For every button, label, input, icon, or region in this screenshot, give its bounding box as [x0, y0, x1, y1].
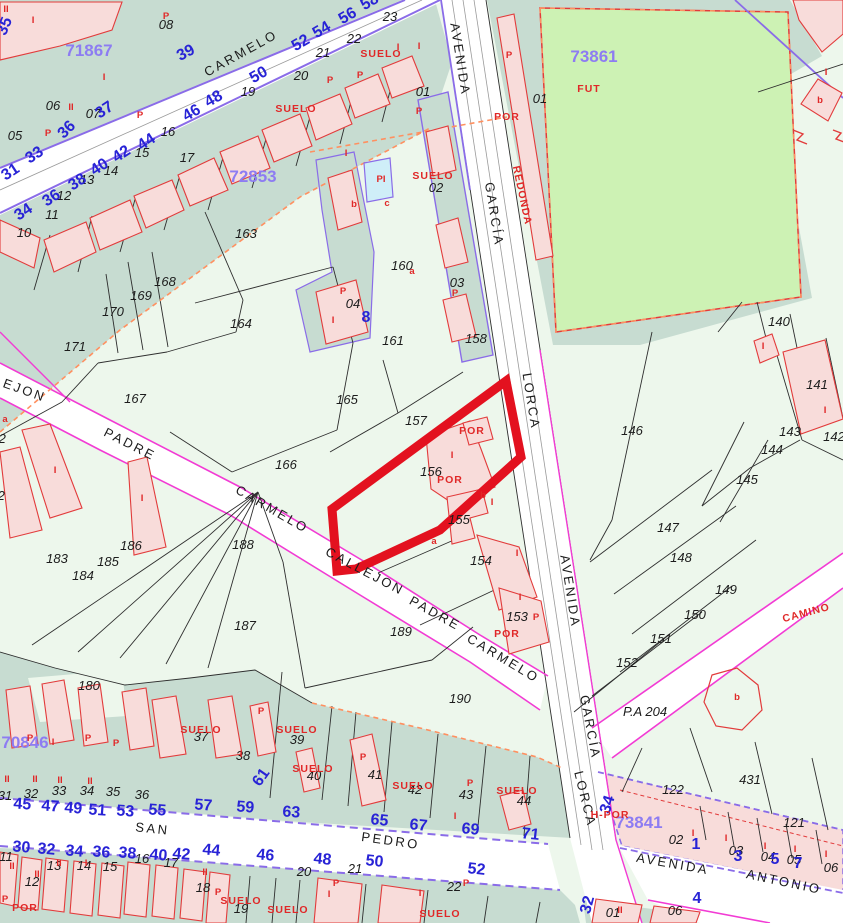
- house-number: 63: [282, 803, 301, 821]
- red-annotation: P: [45, 128, 52, 139]
- block-id: 71867: [65, 41, 112, 60]
- parcel-number: 140: [768, 314, 790, 329]
- red-annotation: I: [764, 841, 767, 852]
- parcel-number: 158: [465, 331, 487, 346]
- red-annotation: II: [202, 867, 207, 878]
- house-number: 52: [467, 860, 487, 879]
- parcel-number: 185: [97, 554, 119, 569]
- red-annotation: I: [418, 41, 421, 52]
- house-number: 47: [41, 797, 60, 815]
- parcel-number: 146: [621, 423, 643, 438]
- parcel-number: 184: [72, 568, 94, 583]
- red-annotation: P: [463, 878, 470, 889]
- red-annotation: P: [452, 288, 459, 299]
- red-annotation: P: [357, 70, 364, 81]
- parcel-number: 144: [761, 442, 783, 457]
- red-annotation: I: [103, 72, 106, 83]
- red-annotation: I: [491, 497, 494, 508]
- red-annotation: POR: [494, 111, 520, 123]
- parcel-number: 431: [739, 772, 761, 787]
- parcel-number: 17: [180, 150, 195, 165]
- parcel-number: 165: [336, 392, 358, 407]
- red-annotation: SUELO: [419, 908, 460, 920]
- house-number: 40: [149, 846, 168, 864]
- parcel-number: 167: [124, 391, 146, 406]
- parcel-number: 122: [662, 782, 684, 797]
- parcel-number: 18: [196, 880, 211, 895]
- red-annotation: SUELO: [412, 170, 453, 182]
- house-number: 67: [409, 816, 429, 835]
- parcel-number: 22: [446, 879, 462, 894]
- parcel-number: 148: [670, 550, 692, 565]
- red-annotation: SUELO: [496, 785, 537, 797]
- red-annotation: SUELO: [275, 103, 316, 115]
- red-annotation: POR: [437, 474, 463, 486]
- red-annotation: b: [351, 199, 357, 210]
- parcel-number: 02: [429, 180, 444, 195]
- parcel-number: 21: [347, 861, 362, 876]
- parcel-number: 05: [8, 128, 23, 143]
- parcel-number: 06: [46, 98, 61, 113]
- parcel-number: 10: [17, 225, 32, 240]
- parcel-number: 149: [715, 582, 737, 597]
- red-annotation: I: [328, 889, 331, 900]
- parcel-number: 143: [779, 424, 801, 439]
- red-annotation: II: [9, 861, 14, 872]
- parcel-number: 182: [0, 488, 6, 503]
- house-number: 34: [65, 842, 84, 860]
- red-annotation: SUELO: [220, 895, 261, 907]
- red-annotation: I: [825, 67, 828, 78]
- red-annotation: P: [467, 778, 474, 789]
- red-annotation: P: [416, 106, 423, 117]
- parcel-number: 19: [241, 84, 255, 99]
- red-annotation: P: [113, 738, 120, 749]
- parcel-number: 189: [390, 624, 412, 639]
- red-annotation: POR: [12, 902, 38, 914]
- red-annotation: II: [56, 858, 61, 869]
- parcel-number: 186: [120, 538, 142, 553]
- house-number: 50: [365, 852, 385, 871]
- red-annotation: a: [2, 414, 8, 425]
- house-number: 42: [172, 845, 191, 863]
- parcel-number: 190: [449, 691, 471, 706]
- parcel-number: 171: [64, 339, 86, 354]
- house-number: 51: [88, 801, 107, 819]
- red-annotation: I: [824, 405, 827, 416]
- parcel-number: 38: [236, 748, 251, 763]
- red-annotation: SUELO: [276, 724, 317, 736]
- parcel-number: 145: [736, 472, 758, 487]
- red-annotation: b: [480, 490, 486, 501]
- parcel-number: P.A 204: [623, 704, 667, 719]
- parcel-number: 20: [293, 68, 309, 83]
- red-annotation: I: [85, 858, 88, 869]
- parcel-number: 151: [650, 631, 672, 646]
- parcel-number: 180: [78, 678, 100, 693]
- red-annotation: II: [57, 775, 62, 786]
- red-annotation: P: [327, 75, 334, 86]
- parcel-number: 21: [315, 45, 330, 60]
- red-annotation: I: [794, 844, 797, 855]
- house-number: 48: [313, 850, 333, 869]
- parcel-number: 155: [448, 512, 470, 527]
- red-annotation: I: [54, 465, 57, 476]
- cadastral-map-viewport: CARMELOAVENIDAGARCÍALORCAAVENIDAGARCÍALO…: [0, 0, 843, 923]
- parcel-number: 141: [806, 377, 828, 392]
- parcel-number: 168: [154, 274, 176, 289]
- red-annotation: b: [817, 95, 823, 106]
- parcel-number: 02: [669, 832, 684, 847]
- red-annotation: II: [3, 4, 8, 15]
- house-number: 36: [92, 843, 111, 861]
- parcel-number: 170: [102, 304, 124, 319]
- red-annotation: a: [409, 266, 415, 277]
- block-id: 73861: [570, 47, 617, 66]
- house-number: 59: [236, 798, 255, 816]
- parcel-number: 152: [616, 655, 638, 670]
- parcel-number: 06: [824, 860, 839, 875]
- red-annotation: II: [68, 102, 73, 113]
- parcel-number: 22: [346, 31, 362, 46]
- red-annotation: b: [734, 692, 740, 703]
- parcel-number: 188: [232, 537, 254, 552]
- red-annotation: c: [384, 198, 389, 209]
- red-annotation: P: [258, 706, 265, 717]
- building: [152, 865, 178, 919]
- red-annotation: II: [32, 774, 37, 785]
- red-annotation: I: [32, 15, 35, 26]
- parcel-number: 36: [135, 787, 150, 802]
- red-annotation: FUT: [577, 83, 600, 95]
- red-annotation: II: [4, 774, 9, 785]
- parcel-number: 04: [346, 296, 360, 311]
- red-annotation: I: [141, 493, 144, 504]
- parcel-number: 154: [470, 553, 492, 568]
- red-annotation: I: [240, 749, 243, 760]
- house-number: 4: [693, 890, 702, 907]
- red-annotation: SUELO: [292, 763, 333, 775]
- red-annotation: POR: [459, 425, 485, 437]
- parcel-number: 142: [823, 429, 843, 444]
- house-number: 44: [202, 841, 221, 859]
- red-annotation: I: [825, 849, 828, 860]
- parcel-number: 163: [235, 226, 257, 241]
- parcel-number: 20: [296, 864, 312, 879]
- red-annotation: P: [137, 110, 144, 121]
- house-number: 32: [37, 840, 56, 858]
- house-number: 46: [256, 846, 275, 864]
- red-annotation: I: [725, 833, 728, 844]
- block-id: 70846: [1, 733, 48, 752]
- house-number: 5: [771, 851, 780, 868]
- red-annotation: SUELO: [267, 904, 308, 916]
- house-number: 45: [13, 795, 32, 813]
- red-annotation: I: [516, 548, 519, 559]
- house-number: 69: [461, 820, 481, 839]
- red-annotation: POR: [494, 628, 520, 640]
- red-annotation: II: [617, 905, 622, 916]
- red-annotation: P: [533, 612, 540, 623]
- red-annotation: PI: [377, 174, 386, 185]
- parcel-number: 06: [668, 903, 683, 918]
- parcel-number: 172: [0, 431, 7, 446]
- parcel-number: 164: [230, 316, 252, 331]
- red-annotation: H-POR: [591, 809, 630, 821]
- building: [378, 885, 424, 923]
- red-annotation: a: [431, 536, 437, 547]
- parcel-number: 187: [234, 618, 256, 633]
- house-number: 57: [194, 796, 213, 814]
- house-number: 71: [521, 825, 541, 844]
- parcel-number: 169: [130, 288, 152, 303]
- red-annotation: SUELO: [360, 48, 401, 60]
- red-annotation: I: [451, 450, 454, 461]
- building: [124, 862, 150, 917]
- parcel-number: 147: [657, 520, 679, 535]
- red-annotation: I: [397, 42, 400, 53]
- parcel-number: 41: [368, 767, 382, 782]
- house-number: 30: [12, 838, 31, 856]
- red-annotation: P: [506, 50, 513, 61]
- house-number: 49: [64, 799, 83, 817]
- red-annotation: P: [85, 733, 92, 744]
- parcel-number: 16: [161, 124, 176, 139]
- house-number: 53: [116, 802, 135, 820]
- parcel-number: 01: [416, 84, 430, 99]
- red-annotation: I: [519, 592, 522, 603]
- parcel-number: 166: [275, 457, 297, 472]
- red-annotation: I: [332, 315, 335, 326]
- parcel-number: 35: [106, 784, 121, 799]
- parcel-number: 161: [382, 333, 404, 348]
- parcel-number: 43: [459, 787, 474, 802]
- red-annotation: P: [360, 752, 367, 763]
- red-annotation: SUELO: [392, 780, 433, 792]
- block-id: 72853: [229, 167, 276, 186]
- parcel-number: 31: [0, 788, 12, 803]
- red-annotation: SUELO: [180, 724, 221, 736]
- cadastral-map[interactable]: CARMELOAVENIDAGARCÍALORCAAVENIDAGARCÍALO…: [0, 0, 843, 923]
- red-annotation: P: [215, 887, 222, 898]
- parcel-number: 157: [405, 413, 427, 428]
- red-annotation: II: [34, 869, 39, 880]
- house-number: 7: [794, 855, 803, 872]
- parcel-number: 150: [684, 607, 706, 622]
- parcel-number: 121: [783, 815, 805, 830]
- red-annotation: I: [692, 828, 695, 839]
- red-annotation: I: [762, 341, 765, 352]
- parcel-number: 153: [506, 609, 528, 624]
- house-number: 8: [362, 309, 371, 326]
- red-annotation: II: [87, 776, 92, 787]
- parcel-number: 23: [382, 9, 398, 24]
- house-number: 55: [148, 801, 167, 819]
- house-number: 38: [118, 844, 137, 862]
- red-annotation: I: [52, 737, 55, 748]
- red-annotation: P: [333, 878, 340, 889]
- parcel-number: 01: [533, 91, 547, 106]
- red-annotation: P: [27, 733, 34, 744]
- house-number: 3: [734, 848, 743, 865]
- red-annotation: P: [2, 894, 9, 905]
- parcel-number: 183: [46, 551, 68, 566]
- house-number: 65: [370, 811, 390, 830]
- red-annotation: I: [454, 811, 457, 822]
- parcel-number: 16: [135, 851, 150, 866]
- red-annotation: I: [419, 888, 422, 899]
- red-annotation: I: [345, 148, 348, 159]
- red-annotation: P: [163, 11, 170, 22]
- red-annotation: P: [340, 286, 347, 297]
